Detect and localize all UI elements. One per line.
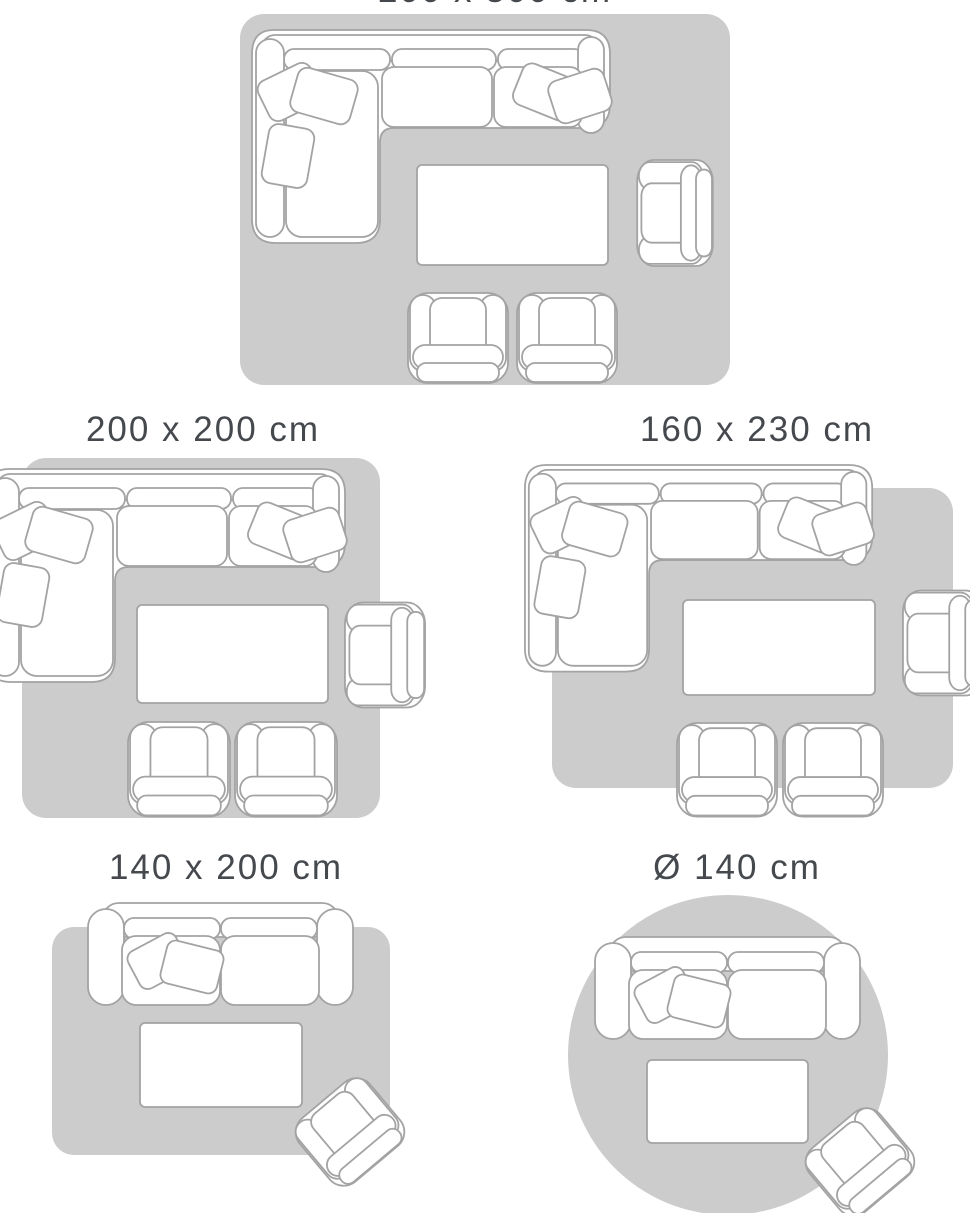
coffee-table bbox=[137, 605, 328, 703]
armchair-bottom-left bbox=[408, 293, 508, 383]
size-label-200x200: 200 x 200 cm bbox=[3, 411, 403, 449]
layout-160x230 bbox=[520, 455, 970, 825]
layout-200x200 bbox=[0, 455, 435, 825]
coffee-table bbox=[647, 1060, 808, 1143]
rug-size-guide: 200 x 300 cm 200 x 200 cm 160 x 230 cm 1… bbox=[0, 0, 970, 1213]
armchair-right bbox=[903, 591, 970, 696]
armchair-right bbox=[637, 160, 713, 266]
size-label-d140: Ø 140 cm bbox=[537, 849, 937, 887]
two-seater-sofa bbox=[595, 937, 860, 1039]
coffee-table bbox=[417, 165, 608, 265]
layout-200x300 bbox=[235, 0, 735, 395]
layout-140x200 bbox=[30, 890, 450, 1213]
size-label-160x230: 160 x 230 cm bbox=[557, 411, 957, 449]
two-seater-sofa bbox=[88, 903, 353, 1005]
coffee-table bbox=[683, 600, 875, 695]
armchair-bottom-left bbox=[128, 722, 230, 817]
armchair-right bbox=[345, 603, 425, 708]
layout-d140 bbox=[540, 890, 970, 1213]
coffee-table bbox=[140, 1023, 302, 1107]
size-label-140x200: 140 x 200 cm bbox=[26, 849, 426, 887]
armchair-bottom-right bbox=[517, 293, 617, 383]
armchair-bottom-right bbox=[783, 723, 883, 817]
armchair-bottom-right bbox=[235, 722, 337, 817]
armchair-bottom-left bbox=[677, 723, 777, 817]
